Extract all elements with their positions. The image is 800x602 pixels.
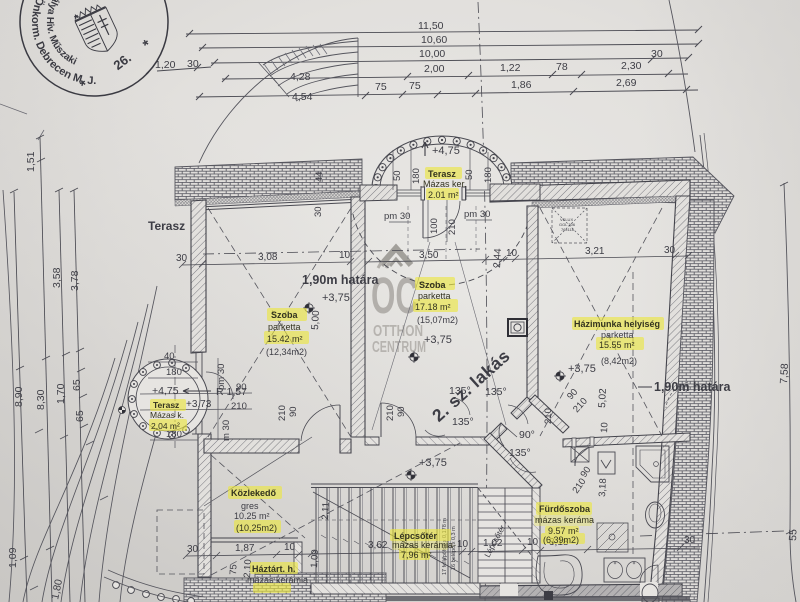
svg-text:3,58: 3,58 <box>51 267 63 288</box>
svg-text:30: 30 <box>664 245 676 256</box>
svg-text:3,18: 3,18 <box>597 478 609 497</box>
svg-text:+4,75: +4,75 <box>432 145 460 157</box>
svg-text:(10,25m2): (10,25m2) <box>236 523 277 533</box>
svg-text:50: 50 <box>392 170 403 181</box>
svg-text:1,02: 1,02 <box>483 538 503 549</box>
svg-text:180: 180 <box>166 367 182 378</box>
svg-text:90: 90 <box>396 406 407 417</box>
svg-text:210: 210 <box>385 405 396 421</box>
svg-text:3,50: 3,50 <box>419 250 439 261</box>
svg-text:(8,42m2): (8,42m2) <box>601 356 637 366</box>
svg-text:10,60: 10,60 <box>421 34 447 46</box>
svg-text:m 30: m 30 <box>221 420 232 441</box>
svg-text:30: 30 <box>187 58 199 70</box>
svg-text:135°: 135° <box>509 447 531 459</box>
svg-text:Mázas k.: Mázas k. <box>150 410 184 420</box>
svg-text:210: 210 <box>277 405 288 421</box>
svg-text:135°: 135° <box>485 386 507 398</box>
svg-text:1,20: 1,20 <box>155 59 176 71</box>
svg-text:8,90: 8,90 <box>13 386 25 407</box>
svg-text:parketta: parketta <box>268 322 301 332</box>
svg-text:90°: 90° <box>519 429 535 441</box>
svg-text:1,09: 1,09 <box>309 549 321 568</box>
svg-text:+3,73: +3,73 <box>186 399 212 410</box>
svg-text:10: 10 <box>506 248 518 259</box>
svg-text:180: 180 <box>411 168 422 184</box>
svg-text:10: 10 <box>284 542 296 553</box>
svg-text:Szoba: Szoba <box>419 280 446 290</box>
svg-text:210: 210 <box>447 219 458 235</box>
svg-text:75: 75 <box>228 564 240 575</box>
svg-text:3,08: 3,08 <box>258 252 278 263</box>
svg-text:+3,75: +3,75 <box>322 292 350 304</box>
svg-text:2,11: 2,11 <box>320 502 332 520</box>
svg-text:10,00: 10,00 <box>419 48 445 60</box>
svg-text:+3,75: +3,75 <box>424 334 452 346</box>
svg-text:2,30: 2,30 <box>621 60 642 72</box>
svg-text:210: 210 <box>231 401 247 412</box>
svg-text:3,78: 3,78 <box>69 270 81 291</box>
svg-text:75: 75 <box>375 81 387 93</box>
svg-text:10: 10 <box>339 250 351 261</box>
svg-text:pm 30: pm 30 <box>464 209 490 220</box>
svg-text:Háztárt. h.: Háztárt. h. <box>252 564 296 574</box>
svg-text:10: 10 <box>599 422 611 433</box>
svg-text:Terasz: Terasz <box>428 169 456 179</box>
svg-text:40: 40 <box>164 351 175 362</box>
svg-text:15.42 m²: 15.42 m² <box>267 334 303 344</box>
svg-text:+3,75: +3,75 <box>419 457 447 469</box>
svg-text:gres: gres <box>241 501 259 511</box>
svg-text:R 1,57: R 1,57 <box>216 386 247 398</box>
svg-text:78: 78 <box>556 61 568 73</box>
svg-text:Terasz: Terasz <box>153 400 179 410</box>
svg-text:Mázas ker.: Mázas ker. <box>423 179 467 189</box>
svg-text:1,90m határa: 1,90m határa <box>654 380 731 394</box>
svg-text:mázas kerámia: mázas kerámia <box>247 575 308 585</box>
svg-text:10: 10 <box>527 537 539 548</box>
svg-text:30: 30 <box>651 48 663 60</box>
svg-text:(15,07m2): (15,07m2) <box>417 315 458 325</box>
svg-text:2.01 m²: 2.01 m² <box>428 190 459 200</box>
svg-text:135°: 135° <box>452 416 474 428</box>
svg-text:65: 65 <box>74 410 86 422</box>
svg-text:180: 180 <box>483 167 494 183</box>
svg-text:1,86: 1,86 <box>511 79 532 91</box>
svg-text:parketta: parketta <box>418 291 451 301</box>
svg-text:30: 30 <box>684 535 696 546</box>
svg-text:Közlekedő: Közlekedő <box>231 488 277 498</box>
svg-text:55: 55 <box>787 529 800 541</box>
svg-text:(6,39m2): (6,39m2) <box>543 535 579 545</box>
svg-text:3,21: 3,21 <box>585 246 605 257</box>
svg-text:100: 100 <box>429 218 440 234</box>
svg-text:210: 210 <box>543 408 554 424</box>
svg-text:pm 30: pm 30 <box>384 211 410 222</box>
svg-text:2,69: 2,69 <box>616 77 637 89</box>
svg-text:1,87: 1,87 <box>235 543 255 554</box>
svg-text:30: 30 <box>187 544 199 555</box>
svg-text:17.18 m²: 17.18 m² <box>415 302 451 312</box>
svg-text:2,44: 2,44 <box>492 248 504 268</box>
svg-text:+3,75: +3,75 <box>568 363 596 375</box>
svg-text:+4,75: +4,75 <box>152 385 179 397</box>
svg-text:1,90m határa: 1,90m határa <box>302 273 379 287</box>
svg-text:1,51: 1,51 <box>25 151 37 172</box>
svg-text:4,54: 4,54 <box>292 91 313 103</box>
svg-text:44: 44 <box>314 171 325 182</box>
svg-text:15.55 m²: 15.55 m² <box>599 340 635 350</box>
svg-text:11,50: 11,50 <box>418 20 444 32</box>
svg-text:10: 10 <box>457 539 469 550</box>
svg-text:3,62: 3,62 <box>368 540 388 551</box>
svg-text:90: 90 <box>288 406 299 417</box>
svg-text:5,02: 5,02 <box>597 388 609 408</box>
svg-text:Szoba: Szoba <box>271 310 298 320</box>
svg-text:7,58: 7,58 <box>778 363 791 384</box>
svg-text:parketta: parketta <box>601 330 634 340</box>
svg-text:7,96 m²: 7,96 m² <box>401 550 432 560</box>
svg-text:2,04 m²: 2,04 m² <box>151 421 180 431</box>
svg-text:1,09: 1,09 <box>7 547 19 568</box>
svg-text:5,00: 5,00 <box>310 310 322 330</box>
svg-text:1,22: 1,22 <box>500 62 521 74</box>
svg-text:75: 75 <box>409 80 421 92</box>
svg-text:76x118: 76x118 <box>561 227 575 232</box>
svg-text:(12,34m2): (12,34m2) <box>266 347 307 357</box>
svg-text:Terasz: Terasz <box>148 219 185 233</box>
svg-text:Fürdőszoba: Fürdőszoba <box>539 504 591 514</box>
svg-text:30: 30 <box>313 206 324 217</box>
svg-text:Házimunka helyiség: Házimunka helyiség <box>574 319 660 329</box>
svg-text:1,70: 1,70 <box>55 383 67 404</box>
svg-text:65: 65 <box>71 379 83 391</box>
svg-text:8,30: 8,30 <box>35 389 47 410</box>
svg-text:OTTHON: OTTHON <box>373 323 423 340</box>
svg-text:mázas keráma: mázas keráma <box>535 515 594 525</box>
svg-text:mázas kerámia-: mázas kerámia- <box>392 540 456 550</box>
svg-text:30: 30 <box>176 253 188 264</box>
svg-text:2,00: 2,00 <box>424 63 445 75</box>
svg-text:10.25 m²: 10.25 m² <box>234 511 270 521</box>
